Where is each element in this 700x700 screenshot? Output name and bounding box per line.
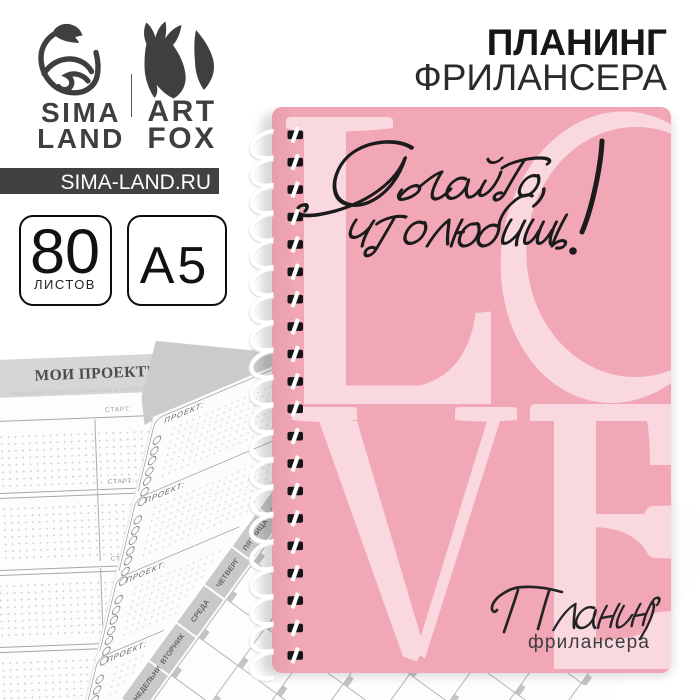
svg-text:фрилансера: фрилансера (528, 632, 650, 653)
